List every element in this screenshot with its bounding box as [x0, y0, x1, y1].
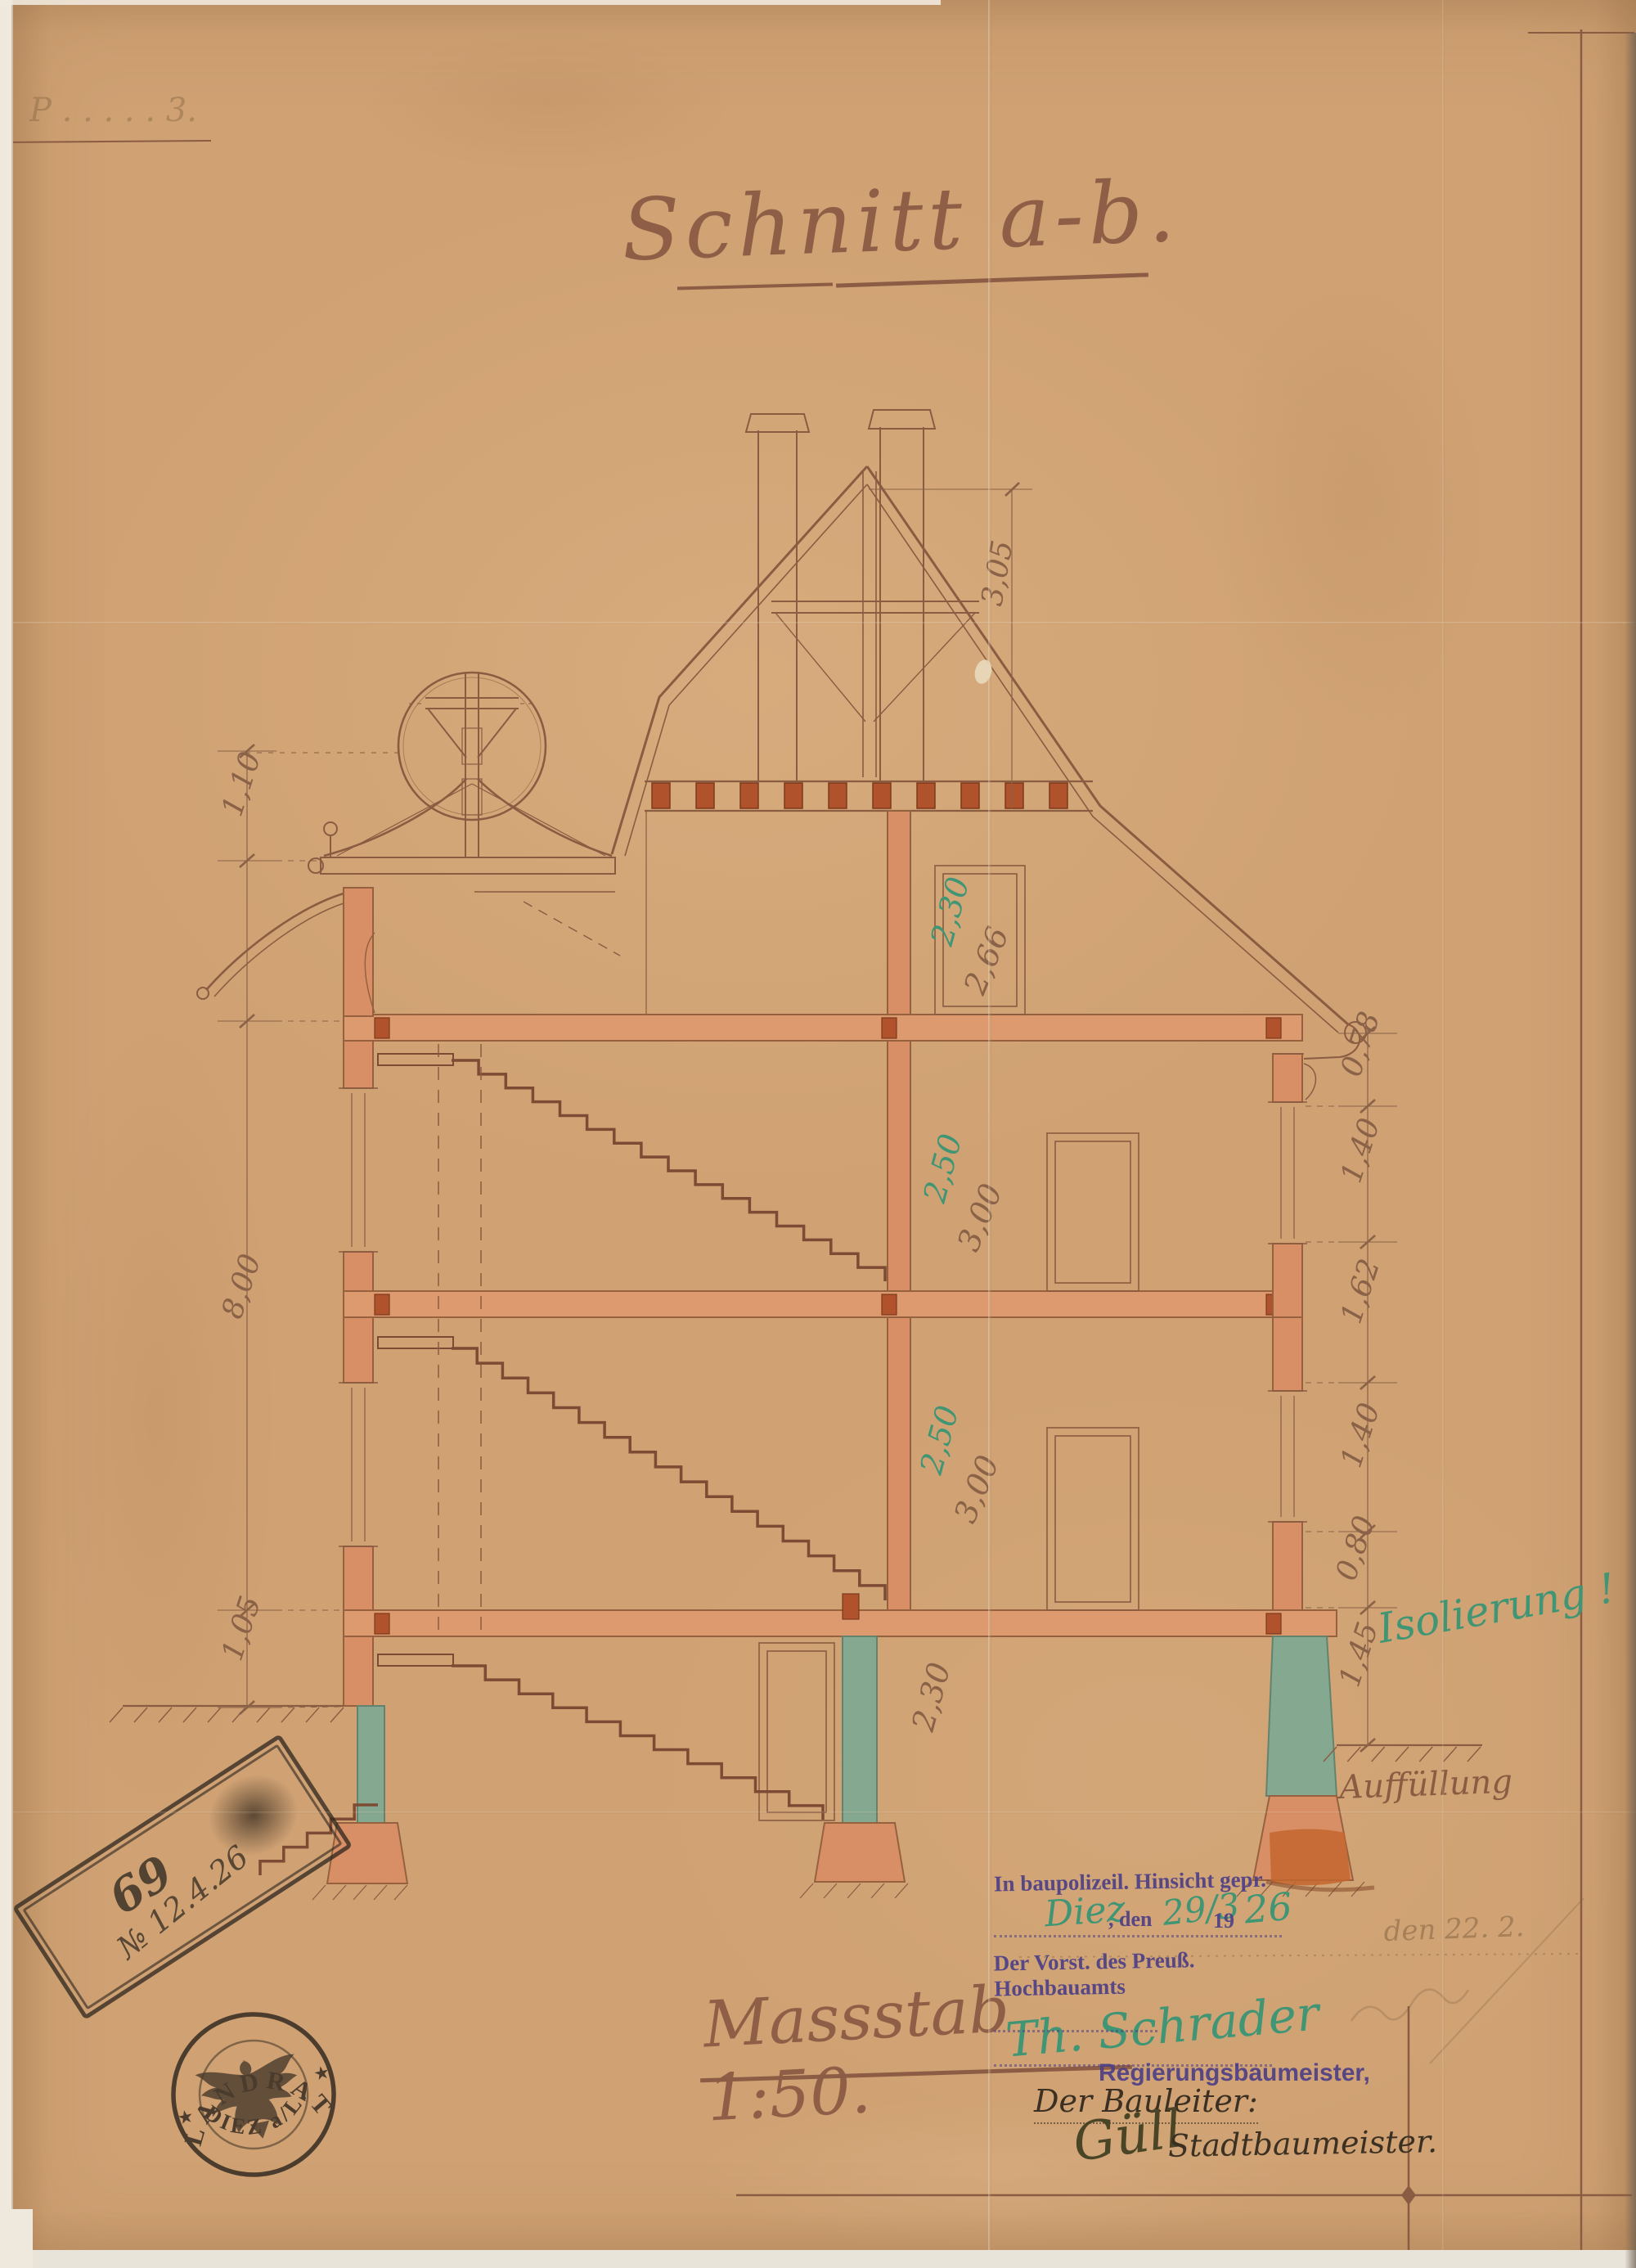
paper-edge-left — [0, 0, 13, 2268]
dim-left-0: 1,10 — [216, 748, 268, 821]
f2-height-green: 2,50 — [916, 1130, 969, 1207]
dim-roof-height: 3,05 — [975, 538, 1019, 609]
paper-corner-bottom-left — [0, 2209, 33, 2268]
joist-blocks — [652, 783, 1067, 808]
dim-right-5: 1,45 — [1333, 1618, 1386, 1691]
landrat-seal: LANDRAT DIEZ a/L. ★ ★ — [155, 1999, 352, 2190]
dimension-lines — [218, 483, 1397, 1752]
chimney-left — [746, 414, 809, 781]
turret-wheel-circle — [398, 673, 546, 820]
stamp-dotted-rule — [994, 2030, 1157, 2032]
dim-right-4: 0,80 — [1330, 1512, 1382, 1585]
paper-edge-bottom — [0, 2250, 1636, 2268]
bauleiter-block: Der Bauleiter: Güll Stadtbaumeister. — [1034, 2083, 1459, 2119]
approval-stamp-block: In baupolizeil. Hinsicht gepr. Diez , de… — [994, 1869, 1321, 2077]
beam-ends — [375, 1018, 1281, 1634]
approval-year-print: 19 — [1213, 1909, 1234, 1933]
f1-height-brown: 3,00 — [947, 1450, 1006, 1528]
corner-sheet-note: P . . . . . 3. — [29, 92, 226, 129]
basement-piers — [357, 1636, 1337, 1823]
dimension-labels: 0,78 1,40 1,62 1,40 0,80 1,45 1,10 8,00 … — [216, 538, 1387, 1691]
f1-height-green: 2,50 — [913, 1402, 966, 1478]
section-drawing: 0,78 1,40 1,62 1,40 0,80 1,45 1,10 8,00 … — [0, 0, 1636, 2268]
staircase — [260, 1054, 885, 1875]
chimney-right — [869, 410, 935, 781]
stair-run-middle — [452, 1348, 885, 1600]
pencil-date: den 22. 2. — [1383, 1910, 1525, 1948]
paper-edge-top — [0, 0, 941, 5]
drawing-title: Schnitt a-b. — [620, 160, 1212, 280]
paper-edge-right-shadow — [1625, 33, 1636, 2268]
bauleiter-beruf: Stadtbaumeister. — [1168, 2123, 1438, 2164]
dim-left-2: 1,05 — [216, 1592, 268, 1665]
approval-year-handwritten: 26 — [1243, 1884, 1294, 1933]
dim-right-2: 1,62 — [1335, 1255, 1387, 1328]
auffuellung-label: Auffüllung — [1336, 1763, 1513, 1807]
finial-knob — [324, 822, 337, 835]
scanned-architectural-drawing: { "title": "Schnitt a-b.", "corner_note"… — [0, 0, 1636, 2268]
basement-height: 2,30 — [905, 1658, 958, 1735]
attic-height-green: 2,30 — [924, 873, 977, 950]
stamp-dotted-rule — [994, 1935, 1282, 1937]
dim-left-1: 8,00 — [216, 1250, 268, 1323]
stair-run-upper — [452, 1060, 885, 1281]
stair-dashed-lines — [438, 1044, 481, 1636]
attic-height-brown: 2,66 — [956, 921, 1016, 1000]
right-wall — [1273, 1054, 1302, 1610]
dim-right-3: 1,40 — [1335, 1399, 1387, 1472]
floor-slabs — [344, 1015, 1337, 1636]
dim-right-1: 1,40 — [1335, 1114, 1387, 1187]
f2-height-brown: 3,00 — [951, 1178, 1009, 1256]
turret — [197, 673, 620, 999]
approval-den: , den — [1108, 1907, 1152, 1932]
middle-wall — [888, 811, 910, 1610]
